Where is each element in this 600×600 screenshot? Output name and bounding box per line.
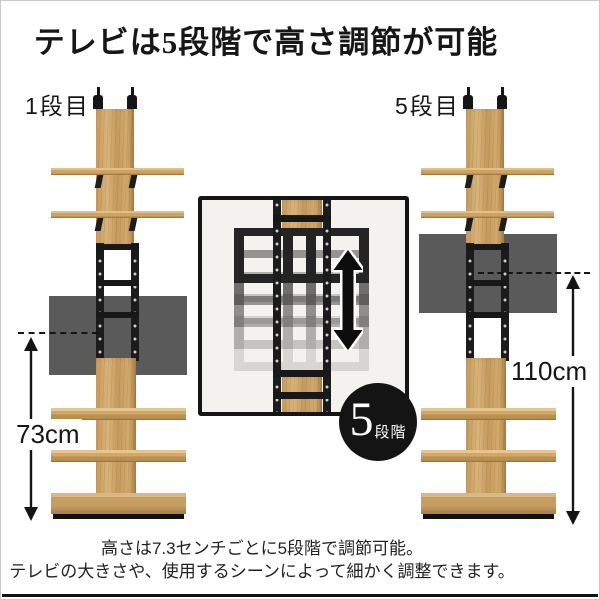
level5-label: 5段目 xyxy=(395,87,460,121)
product-feature-image: テレビは5段階で高さ調節が可能 xyxy=(0,0,600,600)
tension-rod-adjuster xyxy=(127,95,137,109)
mount-rung xyxy=(466,280,509,286)
height-label-73cm: 73cm xyxy=(14,419,82,450)
lower-shelf xyxy=(51,450,186,462)
mount-rail xyxy=(466,243,474,361)
mount-rail xyxy=(501,243,509,361)
mount-rung xyxy=(96,280,139,286)
up-down-arrow-icon xyxy=(333,250,363,350)
tv-center-dashed-line xyxy=(478,272,590,274)
mount-rung xyxy=(96,312,139,318)
mount-rung xyxy=(273,215,331,222)
caption-line-1: 高さは7.3センチごとに5段階で調節可能。 xyxy=(1,537,523,560)
tension-rod-adjuster xyxy=(497,95,507,109)
tv-center-dashed-line xyxy=(18,332,98,334)
base-board xyxy=(421,493,556,514)
tension-rod-adjuster xyxy=(463,95,473,109)
shelf-bracket xyxy=(499,175,508,188)
lower-wood-column xyxy=(466,358,506,498)
badge-number: 5 xyxy=(349,396,373,444)
upper-shelf xyxy=(51,211,184,218)
upper-shelf xyxy=(51,168,184,175)
mount-rail xyxy=(96,243,104,361)
mount-rung xyxy=(96,244,139,250)
shelf-bracket xyxy=(129,218,138,231)
shelf-bracket xyxy=(499,218,508,231)
shelf-bracket xyxy=(129,175,138,188)
height-label-110cm: 110cm xyxy=(509,356,589,387)
base-plinth xyxy=(53,514,184,519)
tension-rod-adjuster xyxy=(93,95,103,109)
badge-unit: 段階 xyxy=(374,421,406,442)
mount-rung xyxy=(466,312,509,318)
mount-rail xyxy=(131,243,139,361)
mount-rail xyxy=(273,200,281,412)
caption-line-2: テレビの大きさや、使用するシーンによって細かく調整できます。 xyxy=(1,560,523,583)
height-110cm-arrow-icon xyxy=(565,275,581,525)
lower-shelf xyxy=(421,408,556,420)
level1-label: 1段目 xyxy=(25,87,90,121)
mount-rung xyxy=(273,392,331,399)
five-levels-badge: 5 段階 xyxy=(339,383,417,461)
caption-text: 高さは7.3センチごとに5段階で調節可能。 テレビの大きさや、使用するシーンによ… xyxy=(1,537,523,583)
bottom-divider xyxy=(2,594,598,597)
mount-rail xyxy=(323,200,331,412)
lower-shelf xyxy=(421,450,556,462)
upper-shelf xyxy=(421,211,554,218)
lower-wood-column xyxy=(96,358,136,498)
upper-shelf xyxy=(421,168,554,175)
mount-rung xyxy=(466,244,509,250)
base-board xyxy=(51,493,186,514)
base-plinth xyxy=(423,514,554,519)
mount-rung xyxy=(273,370,331,377)
